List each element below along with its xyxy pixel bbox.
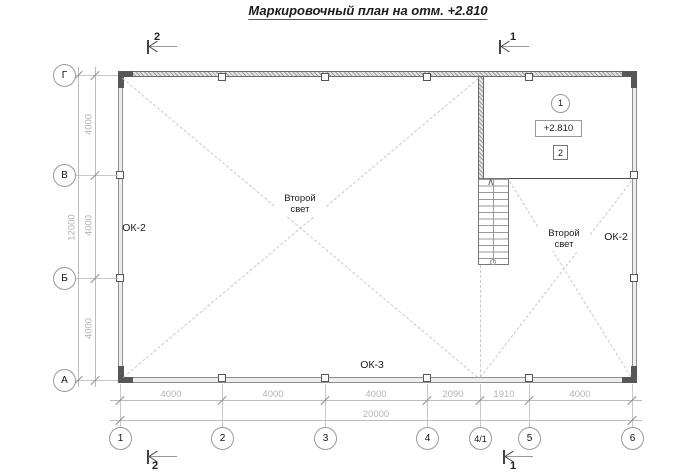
dimension-label: 4000 bbox=[356, 389, 396, 400]
dimension-label: 4000 bbox=[151, 389, 191, 400]
column-marker bbox=[630, 274, 638, 282]
section-marker bbox=[149, 46, 177, 47]
dimension-label: 4000 bbox=[84, 105, 95, 145]
grid-bubble-row: В bbox=[53, 164, 76, 187]
axis-leader bbox=[75, 75, 118, 76]
right-wall bbox=[632, 77, 637, 377]
axis-leader bbox=[75, 278, 118, 279]
grid-bubble-row: Г bbox=[53, 64, 76, 87]
column-marker bbox=[321, 73, 329, 81]
section-marker bbox=[501, 46, 529, 47]
window-label-ok2-right: ОК-2 bbox=[594, 231, 638, 243]
column-marker bbox=[525, 374, 533, 382]
interior-wall bbox=[478, 77, 484, 178]
dimension-line bbox=[110, 400, 642, 401]
grid-bubble-col: 6 bbox=[621, 427, 644, 450]
grid-bubble-col: 4 bbox=[416, 427, 439, 450]
corner-column bbox=[118, 366, 124, 383]
drawing-title: Маркировочный план на отм. +2.810 bbox=[248, 3, 487, 20]
grid-bubble-col: 3 bbox=[314, 427, 337, 450]
grid-bubble-row: Б bbox=[53, 267, 76, 290]
section-arrow-icon bbox=[501, 46, 510, 52]
column-marker bbox=[525, 73, 533, 81]
node-mark-square: 2 bbox=[553, 145, 568, 160]
grid-bubble-col: 1 bbox=[109, 427, 132, 450]
stairs-start-dot bbox=[490, 259, 496, 265]
column-marker bbox=[218, 374, 226, 382]
grid-bubble-col: 4/1 bbox=[469, 427, 492, 450]
second-light-label-left: Второй свет bbox=[274, 193, 326, 216]
axis-leader bbox=[75, 380, 118, 381]
grid-bubble-col: 5 bbox=[518, 427, 541, 450]
grid-bubble-col: 2 bbox=[211, 427, 234, 450]
dimension-label: 1910 bbox=[484, 389, 524, 400]
column-marker bbox=[423, 73, 431, 81]
dimension-label: 4000 bbox=[84, 206, 95, 246]
column-marker bbox=[630, 171, 638, 179]
section-marker bbox=[149, 456, 177, 457]
corner-column bbox=[631, 71, 637, 88]
dimension-line bbox=[95, 67, 96, 387]
window-label-ok2-left: ОК-2 bbox=[112, 222, 156, 234]
window-label-ok3: ОК-3 bbox=[350, 359, 394, 371]
dimension-line bbox=[78, 67, 79, 387]
corner-column bbox=[631, 366, 637, 383]
second-light-label-right: Второй свет bbox=[538, 228, 590, 251]
drawing-canvas: Маркировочный план на отм. +2.810 ∧ ОК-2… bbox=[0, 0, 700, 474]
staircase-center-line bbox=[493, 180, 494, 263]
column-marker bbox=[321, 374, 329, 382]
section-marker bbox=[505, 456, 533, 457]
column-marker bbox=[423, 374, 431, 382]
dimension-label: 2090 bbox=[433, 389, 473, 400]
top-wall bbox=[118, 71, 637, 77]
axis-leader bbox=[75, 175, 118, 176]
dimension-label: 4000 bbox=[84, 309, 95, 349]
grid-bubble-row: А bbox=[53, 369, 76, 392]
column-marker bbox=[218, 73, 226, 81]
bottom-wall bbox=[118, 377, 637, 383]
dimension-label: 4000 bbox=[253, 389, 293, 400]
section-arrow-icon bbox=[149, 46, 158, 52]
elevation-mark: +2.810 bbox=[535, 120, 582, 137]
void-boundary-line bbox=[480, 265, 481, 377]
dimension-line bbox=[110, 420, 642, 421]
node-mark-circle: 1 bbox=[551, 94, 570, 113]
dimension-label: 4000 bbox=[560, 389, 600, 400]
dimension-label: 20000 bbox=[356, 409, 396, 420]
dimension-label: 12000 bbox=[67, 208, 78, 248]
stairs-direction-icon: ∧ bbox=[487, 177, 494, 188]
void-diagonal bbox=[509, 181, 631, 377]
